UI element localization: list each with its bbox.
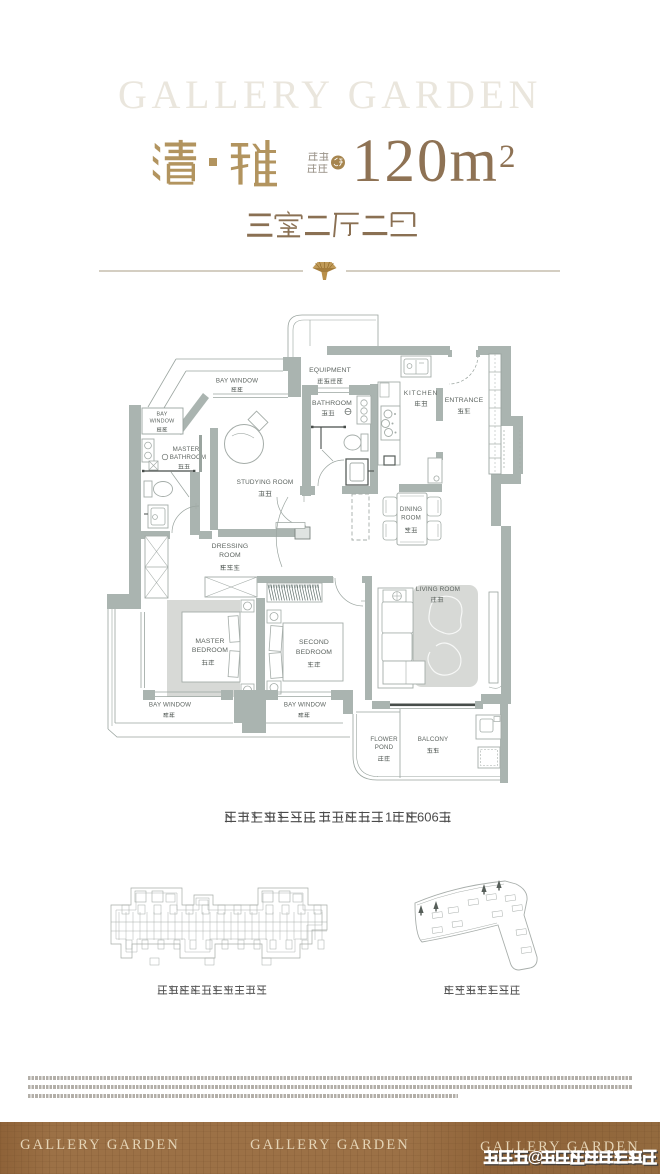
svg-text:@: @	[528, 1149, 544, 1166]
